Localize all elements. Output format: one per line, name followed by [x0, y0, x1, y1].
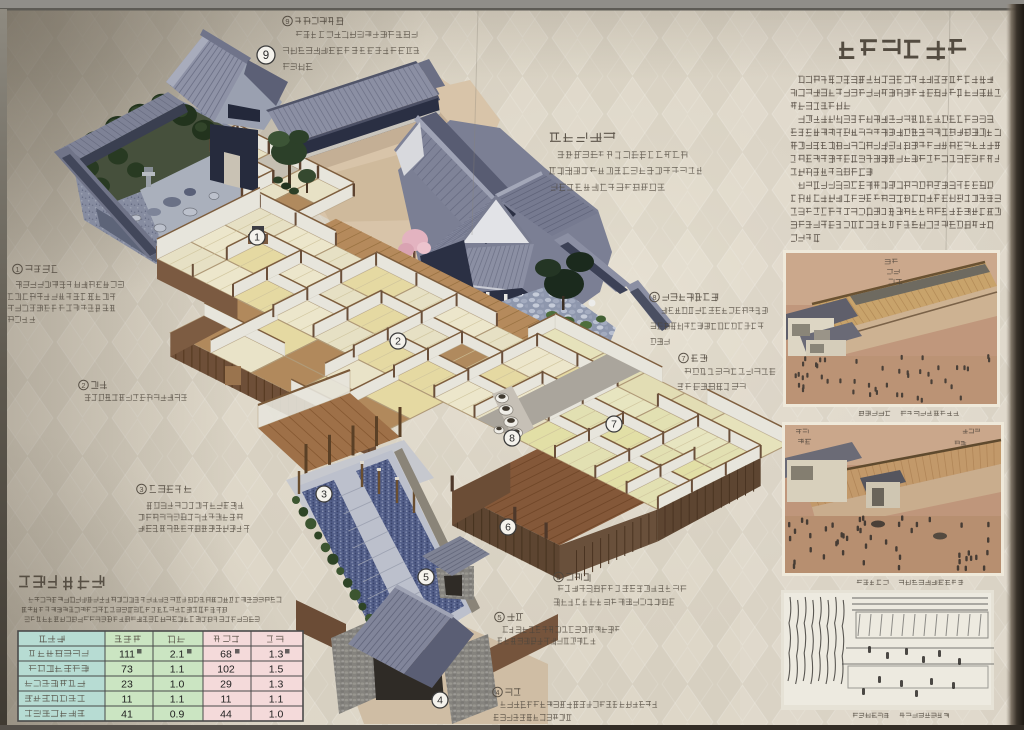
svg-text:5: 5: [423, 572, 429, 584]
svg-text:29: 29: [220, 679, 232, 691]
svg-text:4: 4: [495, 688, 499, 697]
svg-text:1.1: 1.1: [170, 664, 185, 676]
svg-text:73: 73: [121, 664, 133, 676]
svg-text:1.5: 1.5: [269, 664, 284, 676]
svg-text:41: 41: [121, 709, 133, 721]
svg-text:7: 7: [611, 419, 617, 431]
svg-text:1.1: 1.1: [170, 694, 185, 706]
svg-text:102: 102: [217, 664, 235, 676]
svg-text:1.3: 1.3: [269, 649, 284, 661]
svg-text:3: 3: [321, 489, 327, 501]
svg-text:4: 4: [437, 695, 443, 707]
svg-text:8: 8: [509, 433, 515, 445]
svg-text:7: 7: [681, 354, 685, 363]
svg-text:3: 3: [139, 485, 143, 494]
svg-text:2.1: 2.1: [170, 649, 185, 661]
svg-text:2: 2: [395, 336, 401, 348]
svg-text:9: 9: [263, 50, 269, 62]
svg-text:68: 68: [220, 649, 232, 661]
svg-text:1.0: 1.0: [269, 709, 284, 721]
svg-text:1.3: 1.3: [269, 679, 284, 691]
svg-text:1.0: 1.0: [170, 679, 185, 691]
svg-text:6: 6: [556, 573, 560, 582]
svg-text:11: 11: [221, 694, 232, 706]
svg-text:1.1: 1.1: [269, 694, 284, 706]
svg-text:0.9: 0.9: [170, 709, 185, 721]
svg-text:5: 5: [497, 613, 501, 622]
svg-text:11: 11: [122, 694, 133, 706]
svg-text:2: 2: [81, 381, 85, 390]
svg-text:1: 1: [15, 265, 19, 274]
svg-text:44: 44: [220, 709, 232, 721]
svg-text:6: 6: [505, 522, 511, 534]
svg-text:23: 23: [121, 679, 133, 691]
svg-text:9: 9: [285, 17, 289, 26]
svg-text:1: 1: [254, 232, 260, 244]
svg-text:8: 8: [652, 293, 656, 302]
svg-text:111: 111: [119, 649, 135, 661]
